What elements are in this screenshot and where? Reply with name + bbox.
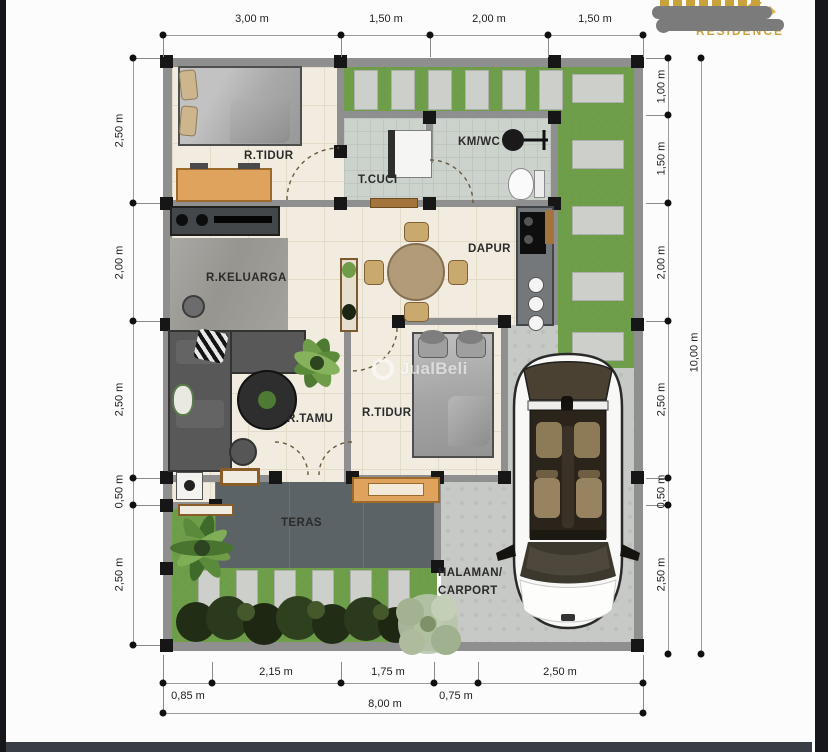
dim-top-2: 2,00 m [449,13,529,25]
dim-right-1: 1,50 m [656,119,669,199]
dim-tick [341,38,342,57]
dim-dot [160,710,167,717]
redaction-blob [660,19,784,31]
dim-bottom-overall: 8,00 m [345,698,425,710]
dim-bottom-0: 0,85 m [148,690,228,702]
label-family-room: R.KELUARGA [206,272,287,284]
dim-right-4: 0,50 m [656,452,669,532]
dim-dot [698,55,705,62]
dim-dot [130,318,137,325]
dim-dot [545,32,552,39]
dim-right-5: 2,50 m [656,535,669,615]
dim-right-3: 2,50 m [656,360,669,440]
dim-bottom-2: 1,75 m [348,666,428,678]
dim-line-bottom-inner [163,683,644,684]
dim-tick [430,38,431,57]
dim-left-0: 2,50 m [114,91,127,171]
dim-tick [136,505,160,506]
dim-right-2: 2,00 m [656,223,669,303]
dim-dot [475,680,482,687]
watermark-text: JualBeli [400,359,468,379]
dim-left-1: 2,00 m [114,223,127,303]
dim-tick [136,321,160,322]
dim-dot [665,318,672,325]
dim-top-1: 1,50 m [346,13,426,25]
dim-dot [640,710,647,717]
label-bathroom: KM/WC [458,136,500,148]
label-yard-line2: CARPORT [438,585,498,597]
redaction-blob [656,18,671,33]
label-bedroom2: R.TIDUR [362,407,411,419]
dim-tick [136,478,160,479]
floor-plan-page: R.TIDUR T.CUCI KM/WC DAPUR R.KELUARGA R.… [0,0,828,752]
dim-dot [130,55,137,62]
dim-tick [136,58,160,59]
dim-right-0: 1,00 m [656,47,669,127]
label-living-room: R.TAMU [287,413,333,425]
dim-bottom-4: 2,50 m [520,666,600,678]
bottom-bar [6,742,812,752]
watermark: JualBeli [372,358,468,380]
dim-top-0: 3,00 m [212,13,292,25]
dim-dot [640,680,647,687]
dim-dot [431,680,438,687]
dim-dot [130,200,137,207]
dim-bottom-1: 2,15 m [236,666,316,678]
dim-left-2: 2,50 m [114,360,127,440]
dim-dot [130,475,137,482]
dim-line-top [163,35,644,36]
dim-line-bottom-outer [163,713,644,714]
dim-dot [209,680,216,687]
dim-dot [427,32,434,39]
dim-tick [136,203,160,204]
dim-bottom-3: 0,75 m [416,690,496,702]
dim-dot [130,502,137,509]
dim-tick [643,38,644,57]
dim-dot [640,32,647,39]
label-kitchen: DAPUR [468,243,511,255]
dim-left-4: 2,50 m [114,535,127,615]
dim-dot [698,651,705,658]
label-yard-line1: HALAMAN/ [438,567,503,579]
watermark-logo-icon [372,358,394,380]
left-edge-bar [0,0,6,752]
dim-left-3: 0,50 m [114,452,127,532]
dim-dot [338,680,345,687]
dim-dot [338,32,345,39]
dim-tick [548,38,549,57]
label-bedroom1: R.TIDUR [244,150,293,162]
dim-tick [163,38,164,57]
dim-dot [665,651,672,658]
label-terrace: TERAS [281,517,322,529]
dim-top-3: 1,50 m [555,13,635,25]
dim-tick [136,645,160,646]
right-edge-bar [815,0,828,752]
redaction-blob [652,6,772,19]
dim-right-overall: 10,00 m [689,313,702,393]
dim-line-left [133,58,134,645]
dim-dot [130,642,137,649]
dim-dot [160,680,167,687]
dim-dot [665,200,672,207]
dim-dot [160,32,167,39]
label-laundry: T.CUCI [358,174,397,186]
